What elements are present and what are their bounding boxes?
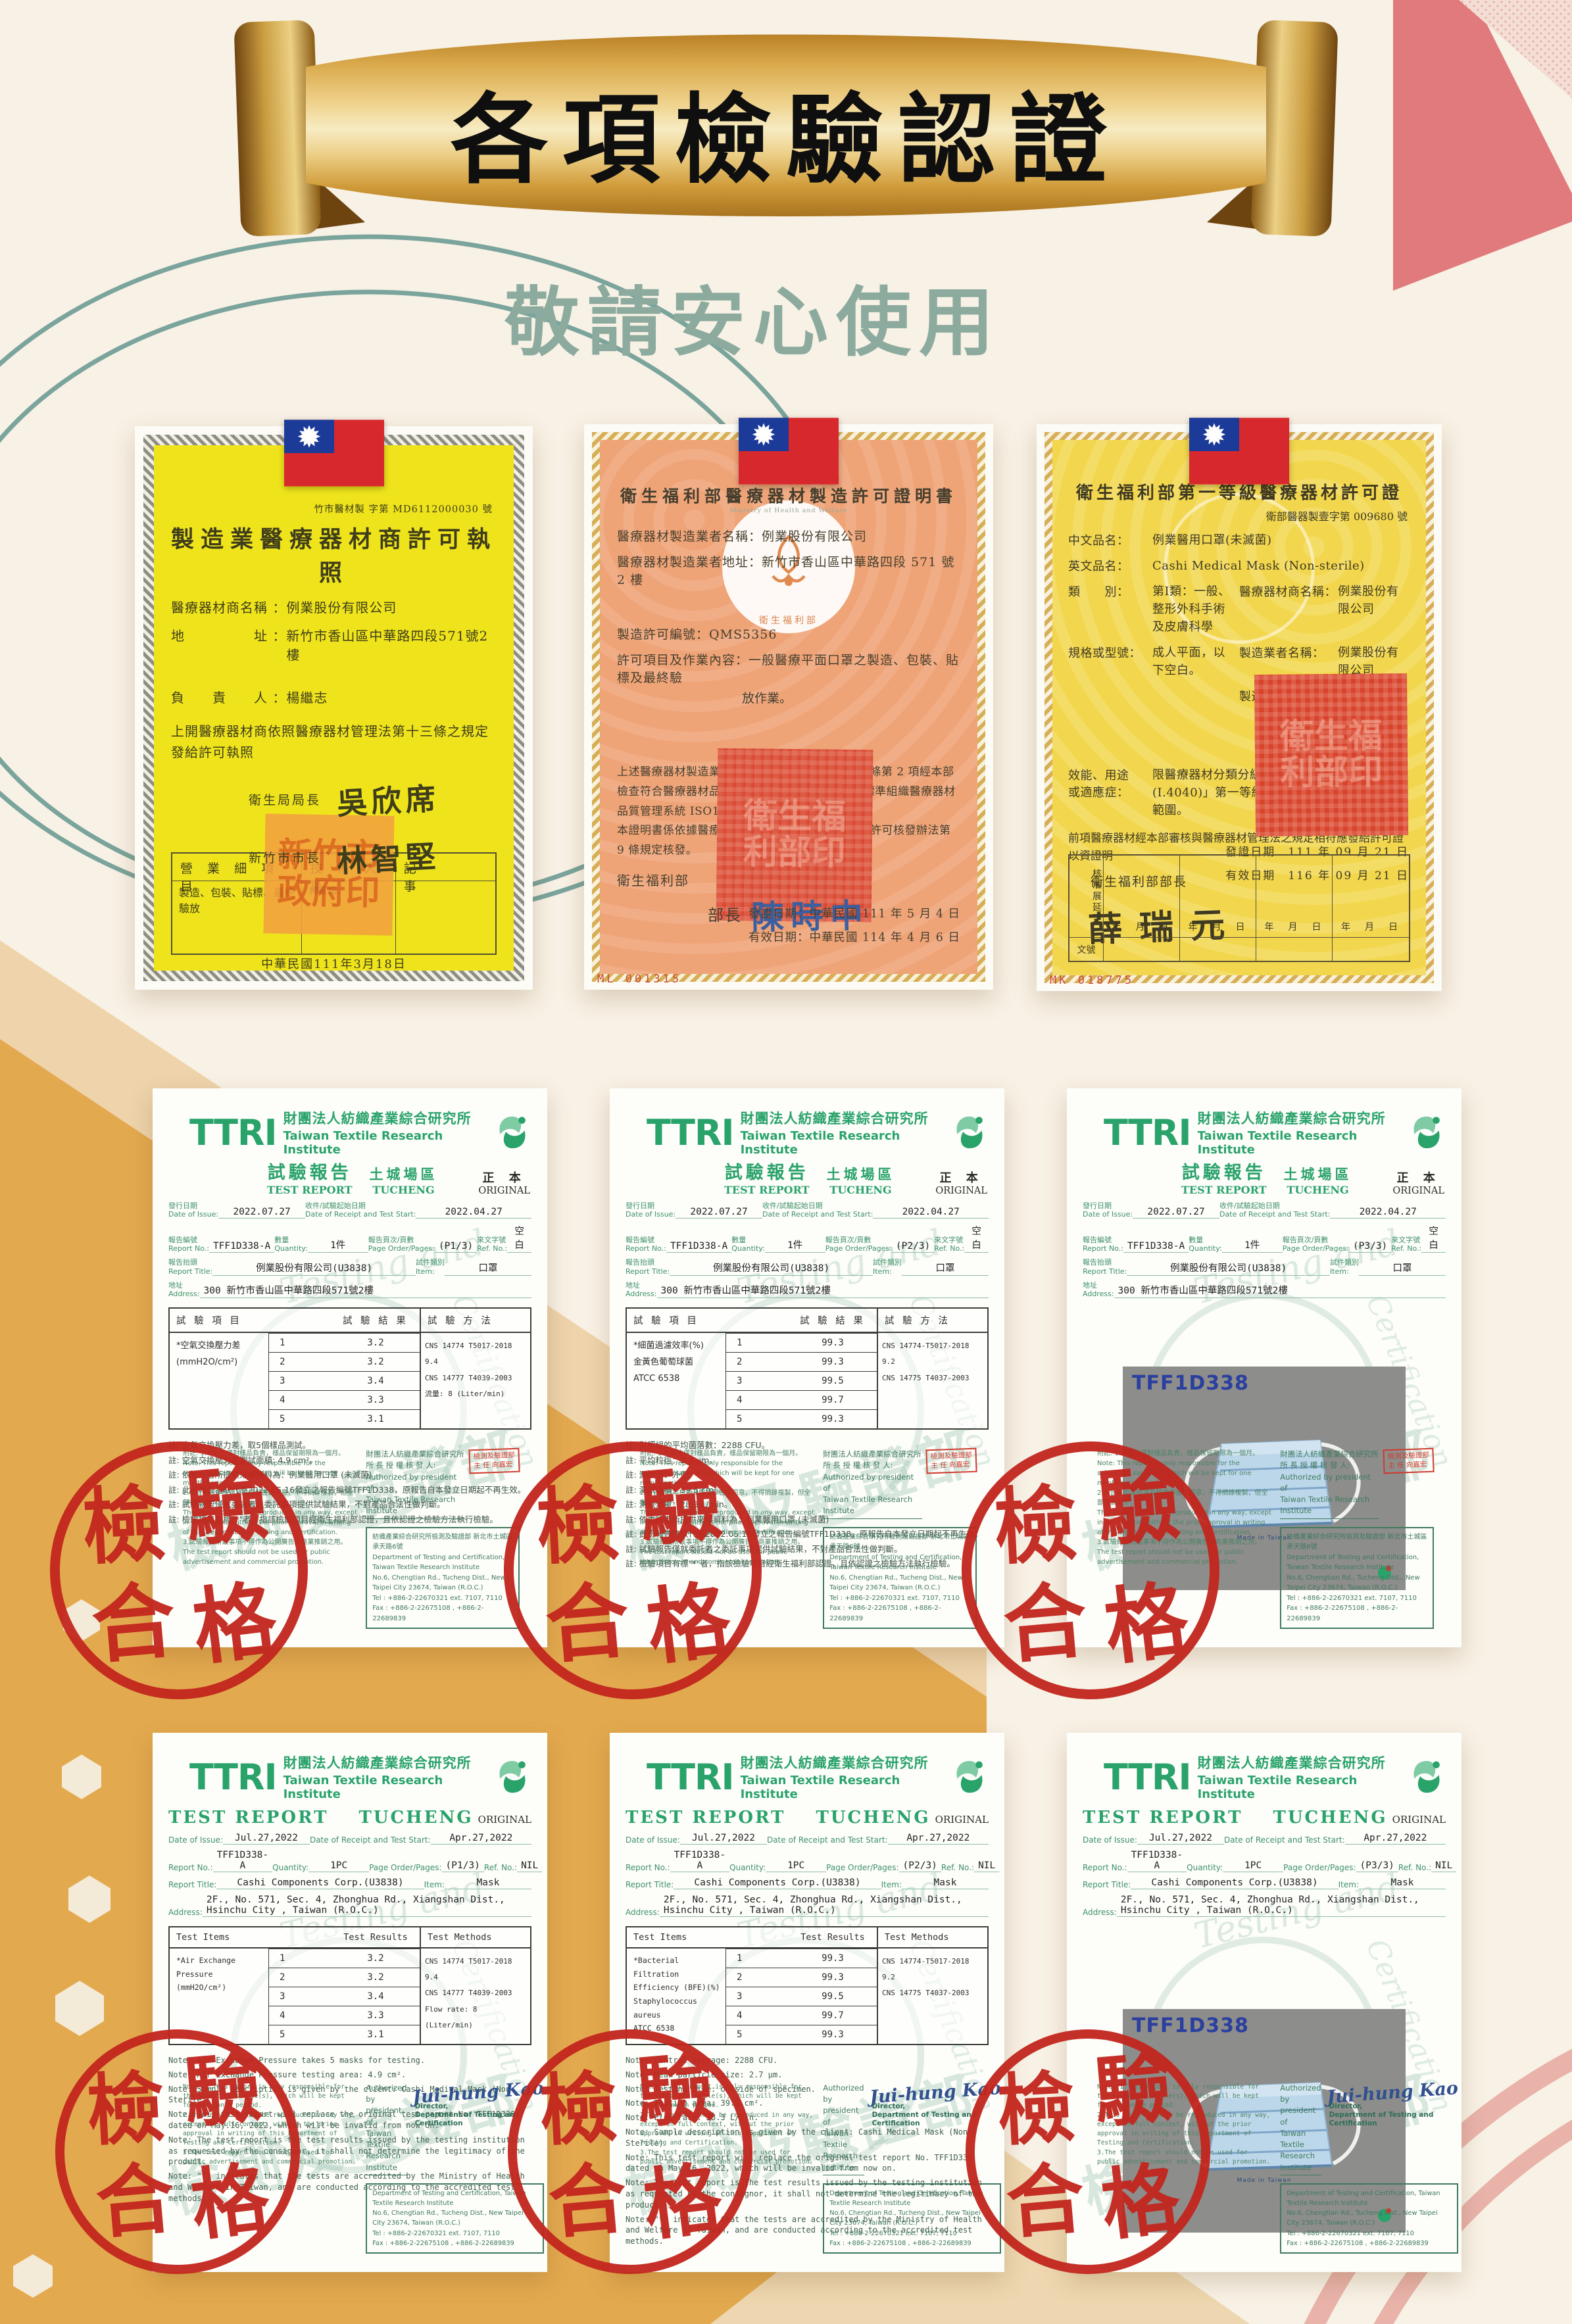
test-methods: CNS 14774-T5017-2018 9.2 CNS 14775 T4037… xyxy=(877,1949,987,2044)
director-stamp: Director, Department of Testing and Cert… xyxy=(872,2102,977,2128)
date-of-receipt: Apr.27,2022 xyxy=(431,1833,531,1845)
license-statement: 上開醫療器材商依照醫療器材管理法第十三條之規定發給許可執照 xyxy=(171,721,497,763)
test-result-value: 3.1 xyxy=(332,1409,420,1428)
test-result-value: 3.2 xyxy=(332,1352,420,1371)
original-label: ORIGINAL xyxy=(935,1814,989,1826)
certification-poster: 各項檢驗認證 敬請安心使用 竹市醫材製 字第 MD6112000030 號 製造… xyxy=(0,0,1572,2324)
sample-id-label: TFF1D338 xyxy=(1132,1372,1249,1395)
site-label: 土城場區TUCHENG xyxy=(1284,1164,1352,1196)
class1-device-license-certificate: 衛生福利部第一等級醫療器材許可證 衛部醫器製壹字第 009680 號 中文品名：… xyxy=(1037,424,1442,991)
test-result-value: 99.3 xyxy=(789,1949,877,1968)
client-address: 300 新竹市香山區中華路四段571號2樓 xyxy=(200,1283,531,1298)
report-heading: 試驗報告TEST REPORT xyxy=(724,1158,810,1196)
original-label: 正 本ORIGINAL xyxy=(478,1169,531,1196)
quantity: 1件 xyxy=(308,1238,368,1253)
certificate-number: MK 018775 xyxy=(1050,974,1134,987)
device-class: 第Ⅰ類：一般、整形外科手術 及皮膚科學 xyxy=(1152,583,1235,636)
ttri-leaf-icon xyxy=(493,1113,531,1151)
license-title: 製造業醫療器材商許可執照 xyxy=(171,521,497,588)
test-results-table: 試 驗 項 目 試 驗 結 果 試 驗 方 法 *細菌過濾效率(%) 金黃色葡萄… xyxy=(626,1307,989,1430)
client-address: 2F., No. 571, Sec. 4, Zhonghua Rd., Xian… xyxy=(660,1895,989,1917)
manufacturing-permit-certificate: Ministry of Health and Welfare 衛生福利部 衛生福… xyxy=(584,424,993,990)
report-heading: TEST REPORTTUCHENGORIGINAL xyxy=(626,1808,989,1828)
client-address: 300 新竹市香山區中華路四段571號2樓 xyxy=(1114,1283,1446,1298)
report-heading: 試驗報告TEST REPORT xyxy=(267,1158,353,1196)
test-methods: CNS 14774-T5017-2018 9.2 CNS 14775 T4037… xyxy=(877,1333,987,1428)
site-label: 土城場區TUCHENG xyxy=(370,1164,438,1196)
sample-number: 1 xyxy=(268,1333,332,1352)
date-of-receipt: 2022.04.27 xyxy=(416,1207,531,1219)
ttri-logo: TTRI 財團法人紡織產業綜合研究所Taiwan Textile Researc… xyxy=(647,1108,989,1157)
test-result-value: 99.3 xyxy=(789,1333,877,1352)
client-address: 300 新竹市香山區中華路四段571號2樓 xyxy=(657,1283,989,1298)
item-type: Mask xyxy=(445,1877,531,1889)
taiwan-flag-icon xyxy=(284,420,384,487)
date-of-issue: 2022.07.27 xyxy=(675,1207,762,1219)
sample-number: 1 xyxy=(725,1949,789,1968)
sample-number: 1 xyxy=(268,1949,332,1968)
report-title: Cashi Components Corp.(U3838) xyxy=(1131,1877,1338,1889)
report-title: Cashi Components Corp.(U3838) xyxy=(674,1877,881,1889)
sample-number: 5 xyxy=(268,1409,332,1428)
sample-number: 4 xyxy=(725,1390,789,1409)
report-heading: TEST REPORTTUCHENGORIGINAL xyxy=(168,1808,531,1828)
page-order: (P2/3) xyxy=(899,1860,941,1872)
authorization-line: 財團法人紡織產業綜合研究所 所 長 授 權 核 發 人: Authorized … xyxy=(366,1449,465,1519)
date-of-receipt: 2022.04.27 xyxy=(1330,1207,1446,1219)
test-result-value: 99.7 xyxy=(789,2006,877,2025)
report-heading: TEST REPORTTUCHENGORIGINAL xyxy=(1083,1808,1446,1828)
sample-number: 3 xyxy=(725,1987,789,2006)
test-result-value: 99.3 xyxy=(789,1409,877,1428)
page-order: (P1/3) xyxy=(442,1860,484,1872)
test-methods: CNS 14774 T5017-2018 9.4 CNS 14777 T4039… xyxy=(420,1949,530,2044)
test-report-row-chinese: 檢測及驗證部 Testing and Certification TTRI 財團… xyxy=(153,1088,1461,1647)
date-of-issue: Jul.27,2022 xyxy=(1137,1833,1224,1845)
test-report-row-english: 檢測及驗證部 Testing and Certification TTRI 財團… xyxy=(153,1733,1461,2272)
report-title: 例業股份有限公司(U3838) xyxy=(1127,1261,1330,1276)
quantity: 1PC xyxy=(1223,1860,1283,1872)
authorization-line: 財團法人紡織產業綜合研究所 所 長 授 權 核 發 人: Authorized … xyxy=(823,1449,922,1519)
report-number: TFF1D338-A xyxy=(209,1241,274,1253)
license-serial: 竹市醫材製 字第 MD6112000030 號 xyxy=(171,502,497,516)
report-number: TFF1D338-A xyxy=(1123,1241,1189,1253)
authorization-line: 財團法人紡織產業綜合研究所 所 長 授 權 核 發 人: Authorized … xyxy=(1280,1449,1379,1519)
issue-date: 中華民國111年3月18日 xyxy=(171,955,497,972)
date-of-issue: Jul.27,2022 xyxy=(680,1833,767,1845)
ref-number: NIL xyxy=(517,1860,542,1872)
mayor-signature: 林智堅 xyxy=(335,833,440,881)
sample-number: 2 xyxy=(725,1968,789,1987)
test-result-value: 3.3 xyxy=(332,2006,420,2025)
test-results-table: Test Items Test Results Test Methods *Ba… xyxy=(626,1926,989,2045)
test-item-name: *細菌過濾效率(%) 金黃色葡萄球菌 ATCC 6538 xyxy=(627,1333,725,1428)
certificate-number: ML 001315 xyxy=(597,973,681,986)
client-address: 2F., No. 571, Sec. 4, Zhonghua Rd., Xian… xyxy=(1117,1895,1446,1917)
test-item-name: *空氣交換壓力差 (mmH2O/cm²) xyxy=(170,1333,268,1428)
quantity: 1PC xyxy=(308,1860,369,1872)
department-address-box: 紡織產業綜合研究所檢測及驗證部 新北市土城區承天路6號 Department o… xyxy=(366,1527,520,1630)
ttri-leaf-icon xyxy=(1408,1113,1446,1151)
report-heading: 試驗報告TEST REPORT xyxy=(1181,1158,1267,1196)
model-spec: 成人平面，以下空白。 xyxy=(1152,644,1235,679)
sample-number: 4 xyxy=(725,2006,789,2025)
ttri-leaf-icon xyxy=(950,1113,989,1151)
authorization-line: Authorized by president of Taiwan Textil… xyxy=(1280,2083,1321,2175)
test-result-value: 3.4 xyxy=(332,1987,420,2006)
authorization-line: Authorized by president of Taiwan Textil… xyxy=(823,2083,864,2175)
department-address-box: 紡織產業綜合研究所檢測及驗證部 新北市土城區承天路6號 Department o… xyxy=(1280,1527,1434,1630)
director-seal-stamp: 檢測及驗證部 主 任 向嘉宏 xyxy=(1383,1448,1434,1474)
item-type: 口罩 xyxy=(1359,1261,1446,1276)
ref-number: NIL xyxy=(974,1860,999,1872)
original-label: ORIGINAL xyxy=(478,1814,531,1826)
certificate-title: 衛生福利部醫療器材製造許可證明書 xyxy=(617,483,960,507)
item-type: Mask xyxy=(902,1877,989,1889)
item-type: 口罩 xyxy=(902,1261,989,1276)
poster-subtitle: 敬請安心使用 xyxy=(0,262,1539,370)
test-result-value: 99.3 xyxy=(789,1352,877,1371)
test-result-value: 99.3 xyxy=(789,2025,877,2044)
test-methods: CNS 14774 T5017-2018 9.4 CNS 14777 T4039… xyxy=(420,1333,530,1428)
permit-number: 製造許可編號：QMS5356 xyxy=(617,625,960,642)
director-stamp: Director, Department of Testing and Cert… xyxy=(415,2102,520,2128)
director-seal-stamp: 檢測及驗證部 主 任 向嘉宏 xyxy=(468,1448,520,1474)
company-name: 例業股份有限公司 xyxy=(286,597,397,616)
extension-table: 核准展延至 年 月 日 年 月 日 年 月 日 年 月 日 文號 xyxy=(1068,854,1410,962)
quantity: 1件 xyxy=(1222,1238,1283,1253)
test-result-value: 99.5 xyxy=(789,1371,877,1390)
sample-number: 5 xyxy=(725,2025,789,2044)
sample-number: 3 xyxy=(725,1371,789,1390)
manufacturer-license-certificate: 竹市醫材製 字第 MD6112000030 號 製造業醫療器材商許可執照 醫療器… xyxy=(135,426,533,990)
item-type: Mask xyxy=(1359,1877,1446,1889)
sample-number: 5 xyxy=(268,2025,332,2044)
sample-number: 2 xyxy=(268,1968,332,1987)
page-order: (P3/3) xyxy=(1356,1860,1398,1872)
certificate-dates: 發證日期：中華民國 111 年 5 月 4 日有效日期：中華民國 114 年 4… xyxy=(749,903,960,950)
sample-number: 1 xyxy=(725,1333,789,1352)
date-of-issue: Jul.27,2022 xyxy=(223,1833,310,1845)
ttri-logo: TTRI 財團法人紡織產業綜合研究所Taiwan Textile Researc… xyxy=(1104,1108,1446,1157)
test-result-value: 3.3 xyxy=(332,1390,420,1409)
manufacturer-name: 醫療器材製造業者名稱：例業股份有限公司 xyxy=(617,527,960,545)
sample-number: 3 xyxy=(268,1987,332,2006)
ref-number: 空 白 xyxy=(964,1224,989,1253)
ref-number: 空 白 xyxy=(507,1224,531,1253)
ref-number: 空 白 xyxy=(1421,1224,1446,1253)
product-name-zh: 例業醫用口罩(未滅菌) xyxy=(1152,531,1272,549)
page-order: (P3/3) xyxy=(1349,1241,1391,1253)
company-address: 新竹市香山區中華路四段571號2樓 xyxy=(286,625,497,664)
ref-number: NIL xyxy=(1431,1860,1456,1872)
report-title: Cashi Components Corp.(U3838) xyxy=(216,1877,424,1889)
report-title: 例業股份有限公司(U3838) xyxy=(670,1261,873,1276)
ttri-leaf-icon xyxy=(493,1758,531,1796)
sample-number: 2 xyxy=(268,1352,332,1371)
client-address: 2F., No. 571, Sec. 4, Zhonghua Rd., Xian… xyxy=(203,1895,531,1917)
department-address-box: 紡織產業綜合研究所檢測及驗證部 新北市土城區承天路6號 Department o… xyxy=(823,1527,977,1630)
report-number: TFF1D338-A xyxy=(1127,1850,1187,1872)
page-order: (P1/3) xyxy=(435,1241,477,1253)
poster-title: 各項檢驗認證 xyxy=(0,61,1572,202)
responsible-person: 楊繼志 xyxy=(286,687,328,706)
taiwan-flag-icon xyxy=(739,418,839,485)
report-title: 例業股份有限公司(U3838) xyxy=(212,1261,416,1276)
test-result-value: 3.2 xyxy=(332,1333,420,1352)
test-result-value: 3.2 xyxy=(332,1968,420,1987)
ttri-logo: TTRI 財團法人紡織產業綜合研究所Taiwan Textile Researc… xyxy=(647,1753,989,1801)
ttri-leaf-icon xyxy=(1408,1758,1446,1796)
test-result-value: 3.2 xyxy=(332,1949,420,1968)
department-address-box: Department of Testing and Certification,… xyxy=(1280,2183,1458,2254)
page-order: (P2/3) xyxy=(892,1241,934,1253)
date-of-issue: 2022.07.27 xyxy=(218,1207,305,1219)
test-results-table: Test Items Test Results Test Methods *Ai… xyxy=(168,1926,531,2045)
report-number: TFF1D338-A xyxy=(670,1850,730,1872)
report-number: TFF1D338-A xyxy=(666,1241,731,1253)
director-seal-stamp: 檢測及驗證部 主 任 向嘉宏 xyxy=(925,1448,977,1474)
license-serial: 衛部醫器製壹字第 009680 號 xyxy=(1068,508,1410,523)
ttri-leaf-icon xyxy=(950,1758,989,1796)
sample-number: 4 xyxy=(268,1390,332,1409)
quantity: 1PC xyxy=(766,1860,826,1872)
test-result-value: 3.4 xyxy=(332,1371,420,1390)
authorization-line: Authorized by president of Taiwan Textil… xyxy=(366,2083,406,2175)
site-label: 土城場區TUCHENG xyxy=(827,1164,895,1196)
manufacturer-address: 醫療器材製造業者地址：新竹市香山區中華路四段 571 號 2 樓 xyxy=(617,552,960,588)
permit-scope: 許可項目及作業內容：一般醫療平面口罩之製造、包裝、貼標及最終驗 xyxy=(617,650,960,686)
health-bureau-signature: 吳欣席 xyxy=(335,775,440,823)
report-number: TFF1D338-A xyxy=(213,1850,273,1872)
date-of-issue: 2022.07.27 xyxy=(1133,1207,1219,1219)
sample-number: 2 xyxy=(725,1352,789,1371)
product-name-en: Cashi Medical Mask (Non-sterile) xyxy=(1152,557,1365,575)
test-result-value: 99.3 xyxy=(789,1968,877,1987)
quantity: 1件 xyxy=(765,1238,825,1253)
original-label: 正 本ORIGINAL xyxy=(1392,1169,1446,1196)
sample-number: 5 xyxy=(725,1409,789,1428)
mohw-seal: 衛生福利部印 xyxy=(1254,673,1408,836)
original-label: 正 本ORIGINAL xyxy=(935,1169,989,1196)
date-of-receipt: Apr.27,2022 xyxy=(1345,1833,1446,1845)
test-result-value: 3.1 xyxy=(332,2025,420,2044)
test-result-value: 99.5 xyxy=(789,1987,877,2006)
sample-number: 4 xyxy=(268,2006,332,2025)
test-results-table: 試 驗 項 目 試 驗 結 果 試 驗 方 法 *空氣交換壓力差 (mmH2O/… xyxy=(168,1307,531,1430)
sample-id-label: TFF1D338 xyxy=(1132,2014,1249,2037)
date-of-receipt: Apr.27,2022 xyxy=(888,1833,989,1845)
director-stamp: Director, Department of Testing and Cert… xyxy=(1329,2102,1434,2128)
date-of-receipt: 2022.04.27 xyxy=(873,1207,989,1219)
item-type: 口罩 xyxy=(445,1261,531,1276)
test-result-value: 99.7 xyxy=(789,1390,877,1409)
ttri-logo: TTRI 財團法人紡織產業綜合研究所Taiwan Textile Researc… xyxy=(189,1753,531,1801)
ttri-logo: TTRI 財團法人紡織產業綜合研究所Taiwan Textile Researc… xyxy=(189,1108,531,1157)
original-label: ORIGINAL xyxy=(1392,1814,1446,1826)
ttri-logo: TTRI 財團法人紡織產業綜合研究所Taiwan Textile Researc… xyxy=(1104,1753,1446,1801)
sample-number: 3 xyxy=(268,1371,332,1390)
taiwan-flag-icon xyxy=(1189,418,1289,485)
